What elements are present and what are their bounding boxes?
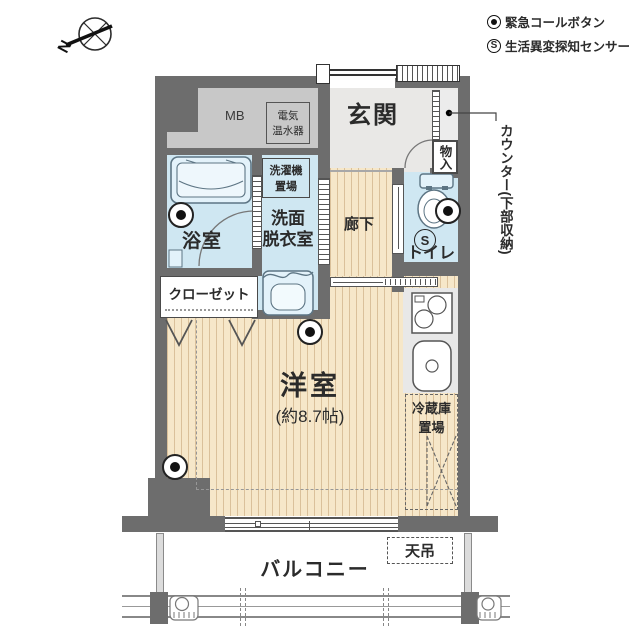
corridor-sliding-door bbox=[330, 277, 438, 287]
balcony-partition-left bbox=[240, 588, 246, 626]
counter-label: カウンター(下部収納) bbox=[496, 124, 513, 314]
main-room-label: 洋室 bbox=[180, 370, 440, 404]
bath-step bbox=[169, 250, 182, 267]
entry-door-leaf bbox=[330, 69, 396, 76]
balcony-partition-right bbox=[383, 588, 389, 626]
washroom-label: 洗面 脱衣室 bbox=[256, 208, 320, 251]
main-room-size: (約8.7帖) bbox=[180, 406, 440, 427]
legend-emergency: 緊急コールボタン bbox=[487, 12, 630, 31]
entry-door-panel bbox=[396, 65, 460, 82]
bathroom-label: 浴室 bbox=[182, 230, 222, 254]
water-heater-line2: 温水器 bbox=[272, 123, 304, 138]
washroom-line2: 脱衣室 bbox=[256, 229, 320, 250]
legend-sensor: S 生活異変探知センサー bbox=[487, 36, 630, 55]
water-heater-line1: 電気 bbox=[278, 108, 299, 123]
counter-edge bbox=[432, 90, 440, 140]
counter-leader bbox=[446, 110, 496, 121]
emergency-call-button-room-left bbox=[162, 454, 188, 480]
fixtures-layer bbox=[0, 0, 640, 640]
balcony-label: バルコニー bbox=[200, 558, 430, 583]
bathtub-icon bbox=[171, 157, 251, 203]
entrance-label: 玄関 bbox=[347, 101, 399, 131]
emergency-call-icon bbox=[487, 15, 501, 29]
corridor-label: 廊下 bbox=[344, 216, 374, 235]
washroom-line1: 洗面 bbox=[256, 208, 320, 229]
emergency-call-button-toilet bbox=[435, 198, 461, 224]
drain-icon-left bbox=[170, 596, 198, 620]
washbasin-icon bbox=[263, 271, 313, 315]
storage-label: 物入 bbox=[436, 145, 455, 170]
washing-machine-line1: 洗濯機 bbox=[270, 162, 303, 178]
sensor-s-icon: S bbox=[487, 39, 501, 53]
drain-icon-right bbox=[477, 596, 501, 620]
storage-box: 物入 bbox=[432, 140, 458, 174]
fridge-cross bbox=[427, 436, 456, 506]
balcony-window bbox=[225, 517, 398, 532]
emergency-call-button-room-top bbox=[297, 319, 323, 345]
toilet-sliding-door bbox=[392, 184, 404, 254]
closet-dotted-line bbox=[165, 309, 253, 311]
meter-box-label: MB bbox=[225, 108, 245, 124]
washing-machine-box: 洗濯機 置場 bbox=[262, 158, 310, 198]
legend-emergency-label: 緊急コールボタン bbox=[505, 12, 605, 31]
dropped-ceiling-hline bbox=[196, 489, 458, 490]
washing-machine-line2: 置場 bbox=[275, 178, 297, 194]
emergency-call-button-bathroom bbox=[168, 202, 194, 228]
water-heater-box: 電気 温水器 bbox=[266, 102, 310, 144]
closet-bifold-doors bbox=[166, 320, 255, 345]
legend: 緊急コールボタン S 生活異変探知センサー bbox=[487, 12, 630, 60]
toilet-label: トイレ bbox=[404, 244, 458, 264]
stove-icon bbox=[412, 293, 452, 333]
closet-label: クローゼット bbox=[161, 283, 257, 303]
closet-box: クローゼット bbox=[160, 276, 258, 318]
floor-plan: N 緊急コールボタン S 生活異変探知センサー bbox=[0, 0, 640, 640]
entrance-door-arc bbox=[405, 140, 433, 168]
entry-door-hinge bbox=[316, 64, 330, 84]
legend-sensor-label: 生活異変探知センサー bbox=[505, 36, 630, 55]
